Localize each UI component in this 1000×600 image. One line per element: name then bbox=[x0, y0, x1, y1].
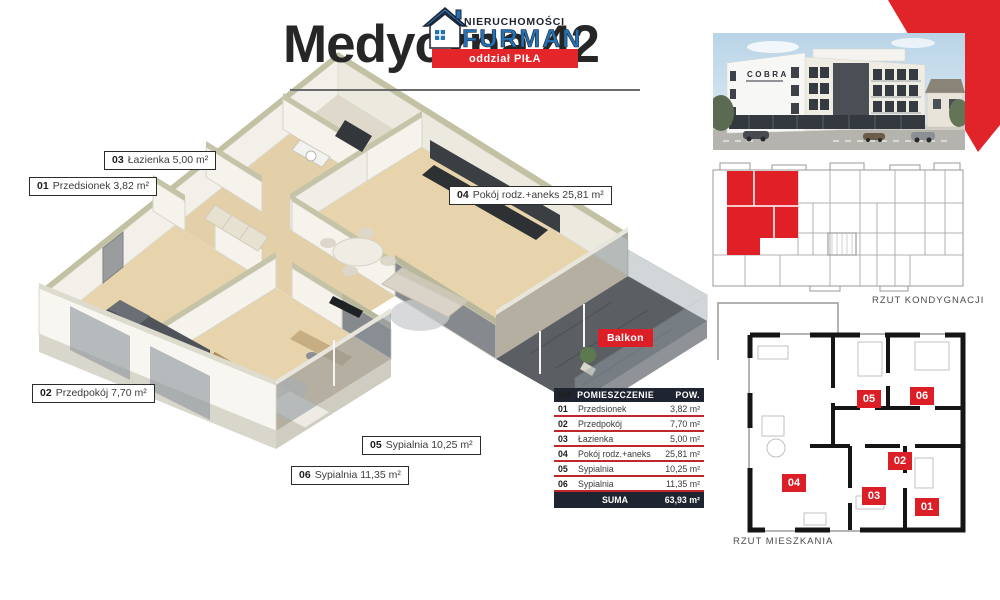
flat-plan-caption: RZUT MIESZKANIA bbox=[733, 536, 833, 547]
label-lazienka: 03Łazienka 5,00 m² bbox=[104, 151, 216, 170]
table-row: 05Sypialnia10,25 m² bbox=[554, 462, 704, 477]
flat-room-badge-02: 02 bbox=[888, 452, 912, 470]
building-photo: COBRA bbox=[713, 33, 965, 150]
storey-plan-caption: RZUT KONDYGNACJI bbox=[872, 295, 984, 306]
table-row: 06Sypialnia11,35 m² bbox=[554, 477, 704, 492]
table-row: 02Przedpokój7,70 m² bbox=[554, 417, 704, 432]
flat-room-badge-06: 06 bbox=[910, 387, 934, 405]
flat-room-badge-03: 03 bbox=[862, 487, 886, 505]
storey-plan bbox=[710, 158, 968, 294]
areas-table: NR POMIESZCZENIE POW. 01Przedsionek3,82 … bbox=[554, 388, 704, 508]
flyer-page: { "header": { "title": "Medyczna 42", "b… bbox=[0, 0, 1000, 600]
building-sign: COBRA bbox=[747, 70, 789, 79]
flat-room-badge-01: 01 bbox=[915, 498, 939, 516]
label-przedsionek: 01Przedsionek 3,82 m² bbox=[29, 177, 157, 196]
table-row: 03Łazienka5,00 m² bbox=[554, 432, 704, 447]
table-sum-row: SUMA 63,93 m² bbox=[554, 492, 704, 508]
table-row: 04Pokój rodz.+aneks25,81 m² bbox=[554, 447, 704, 462]
label-sypialnia-06: 06Sypialnia 11,35 m² bbox=[291, 466, 409, 485]
label-pokoj: 04Pokój rodz.+aneks 25,81 m² bbox=[449, 186, 612, 205]
label-sypialnia-05: 05Sypialnia 10,25 m² bbox=[362, 436, 481, 455]
label-przedpokoj: 02Przedpokój 7,70 m² bbox=[32, 384, 155, 403]
areas-table-header: NR POMIESZCZENIE POW. bbox=[554, 388, 704, 402]
title-divider bbox=[290, 89, 640, 91]
flat-room-badge-05: 05 bbox=[857, 390, 881, 408]
balkon-badge: Balkon bbox=[598, 329, 653, 347]
brand-band: oddział PIŁA bbox=[432, 49, 578, 68]
flat-room-badge-04: 04 bbox=[782, 474, 806, 492]
brand-logo: NIERUCHOMOŚCI FURMAN oddział PIŁA bbox=[420, 4, 590, 74]
table-row: 01Przedsionek3,82 m² bbox=[554, 402, 704, 417]
